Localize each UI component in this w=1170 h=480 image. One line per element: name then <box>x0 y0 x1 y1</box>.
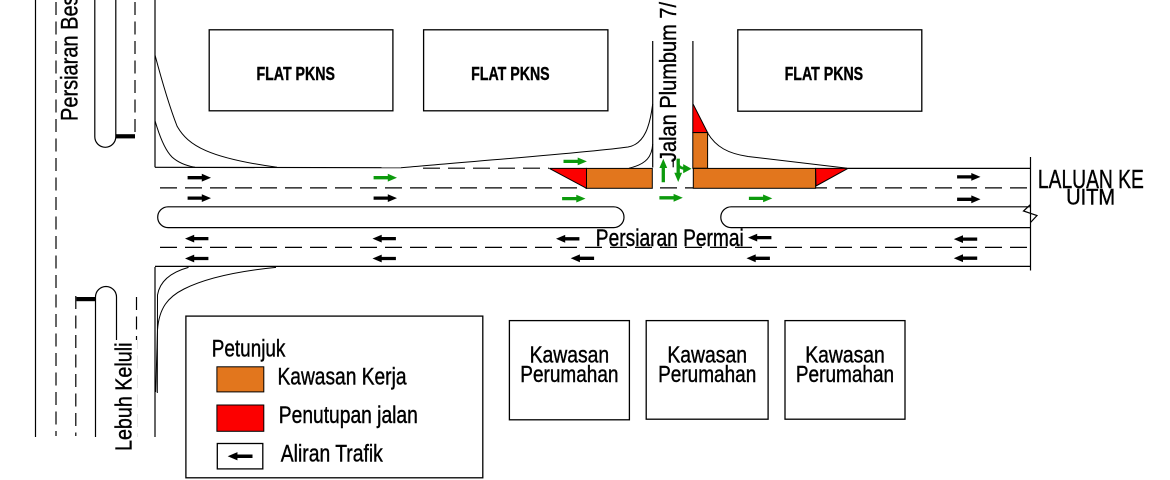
svg-text:Jalan Plumbum 7/: Jalan Plumbum 7/ <box>655 1 681 162</box>
svg-text:FLAT PKNS: FLAT PKNS <box>471 63 550 84</box>
svg-text:UITM: UITM <box>1066 185 1115 210</box>
svg-text:Penutupan jalan: Penutupan jalan <box>279 402 418 429</box>
svg-text:Petunjuk: Petunjuk <box>212 336 286 363</box>
svg-text:Perumahan: Perumahan <box>520 361 618 387</box>
svg-text:FLAT PKNS: FLAT PKNS <box>785 63 864 84</box>
svg-text:Perumahan: Perumahan <box>658 361 756 387</box>
svg-text:Persiaran Permai: Persiaran Permai <box>596 225 744 252</box>
svg-text:Lebuh Keluli: Lebuh Keluli <box>111 343 137 452</box>
svg-text:Aliran Trafik: Aliran Trafik <box>281 441 384 468</box>
svg-text:FLAT PKNS: FLAT PKNS <box>256 63 335 84</box>
svg-text:Persiaran Besi: Persiaran Besi <box>57 0 84 121</box>
svg-text:Perumahan: Perumahan <box>796 361 894 387</box>
svg-text:Kawasan Kerja: Kawasan Kerja <box>278 363 408 390</box>
